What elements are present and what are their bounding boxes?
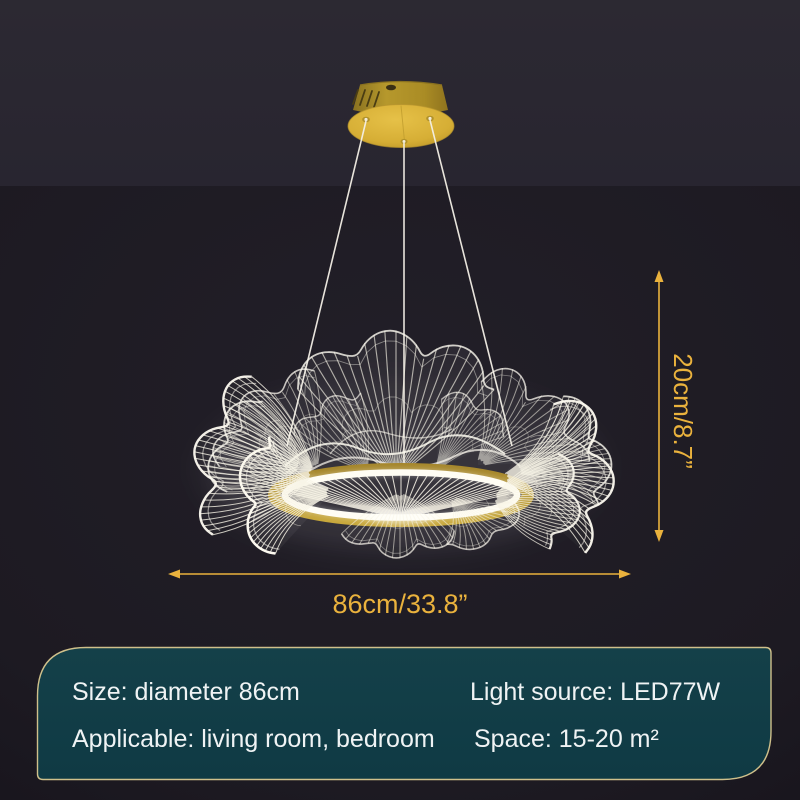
svg-text:Light source: LED77W: Light source: LED77W — [470, 678, 721, 706]
svg-text:86cm/33.8”: 86cm/33.8” — [332, 589, 467, 619]
svg-text:Applicable: living room, bedro: Applicable: living room, bedroom — [72, 725, 435, 753]
svg-text:20cm/8.7”: 20cm/8.7” — [668, 353, 698, 469]
svg-text:Size: diameter 86cm: Size: diameter 86cm — [72, 678, 300, 706]
svg-text:Space: 15-20 m²: Space: 15-20 m² — [474, 725, 659, 753]
